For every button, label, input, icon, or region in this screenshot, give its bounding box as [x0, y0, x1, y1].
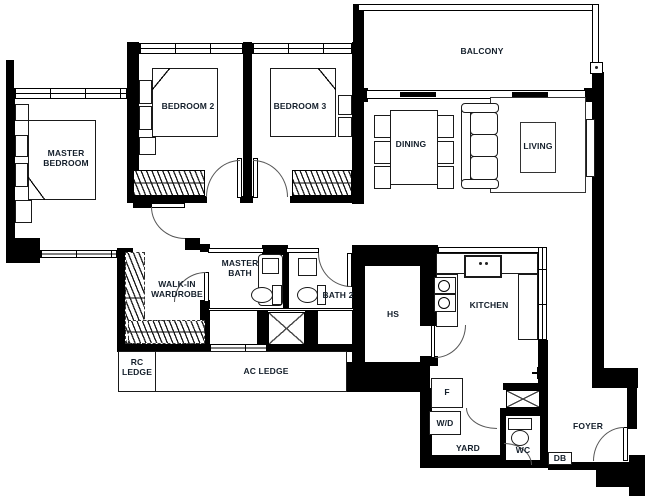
wall-master-corner: [6, 238, 40, 263]
dining-chair: [437, 166, 454, 189]
wall-shaft-left: [257, 310, 268, 348]
wall-hs-bottom: [347, 362, 430, 392]
window-bedroom2: [139, 43, 243, 54]
sink: [298, 258, 317, 276]
sofa-cushion: [470, 156, 498, 180]
shaft-x-icon: [268, 312, 305, 345]
dining-chair: [374, 115, 391, 138]
sliding-door-panel: [400, 92, 436, 97]
cabinet: [15, 104, 29, 121]
bed-fold: [28, 177, 45, 200]
wall-balcony-right: [592, 4, 599, 64]
faucet-icon: [485, 262, 488, 265]
wall-step-block: [596, 470, 630, 487]
dining-chair: [374, 166, 391, 189]
label-bath2: BATH 2: [313, 290, 363, 300]
wall-bedrooms-center: [243, 42, 252, 202]
desk: [139, 137, 156, 155]
label-yard: YARD: [438, 443, 498, 453]
label-hs: HS: [373, 309, 413, 319]
wall-foyer-top: [592, 368, 638, 388]
dining-chair: [437, 115, 454, 138]
walk-in-wardrobe-rail-bottom: [128, 320, 205, 344]
door-arc-yard: [466, 408, 497, 429]
label-db: DB: [548, 453, 572, 463]
label-master-bedroom: MASTER BEDROOM: [26, 148, 106, 168]
door-arc-kitchen: [435, 325, 466, 358]
window-master-bottom: [40, 250, 117, 258]
label-foyer: FOYER: [558, 421, 618, 431]
wall-hall-stub: [133, 202, 151, 208]
wall-corner-block: [629, 455, 645, 496]
toilet-bowl: [511, 430, 529, 446]
bed-fold: [152, 68, 170, 90]
sofa-cushion: [470, 112, 498, 135]
wardrobe-bedroom2: [133, 170, 205, 196]
floor-plan: BALCONY BEDROOM 2 BEDROOM 3 MASTER BEDRO…: [0, 0, 645, 496]
burner-icon: [438, 280, 450, 292]
window-kitchen: [538, 247, 547, 341]
nightstand: [338, 117, 352, 137]
toilet-tank: [272, 285, 282, 305]
wall-masterbath-top: [208, 248, 264, 253]
wall-marker: [537, 367, 539, 379]
wall-yard-bottom: [428, 455, 505, 468]
door-arc-master-bedroom: [151, 207, 185, 239]
tv-console: [586, 119, 595, 177]
label-fridge: F: [437, 387, 457, 397]
wall-hall-corner: [185, 238, 200, 250]
wall-bath2-top: [286, 248, 319, 253]
door-arc-bedroom3: [253, 160, 288, 197]
door-arc-bedroom2: [206, 160, 240, 197]
label-rc-ledge: RC LEDGE: [117, 357, 157, 377]
wall-shaft-right: [305, 310, 318, 348]
wall-column-top-left: [6, 60, 14, 90]
wall-baths-bottom: [208, 308, 354, 311]
label-kitchen: KITCHEN: [449, 300, 529, 310]
wall-bedroom3-bottom: [290, 196, 364, 203]
shaft-x-icon: [506, 390, 540, 408]
label-wc: WC: [508, 445, 538, 455]
label-bedroom2: BEDROOM 2: [148, 101, 228, 111]
wardrobe-bedroom3: [292, 170, 352, 196]
label-ac-ledge: AC LEDGE: [216, 366, 316, 376]
wall-wc-right: [540, 388, 548, 468]
kitchen-sink: [464, 255, 502, 278]
dresser: [15, 200, 32, 223]
label-walk-in-wardrobe: WALK-IN WARDROBE: [137, 279, 217, 299]
wall-balcony-top: [358, 4, 598, 11]
sofa-cushion: [470, 134, 498, 157]
wall-shaft2-top: [503, 383, 548, 390]
sofa-armrest: [461, 179, 499, 189]
wall-bedroom3-right: [352, 42, 364, 204]
wall-master-left: [6, 88, 15, 250]
balcony-drain-dot: [595, 66, 598, 69]
wall-bath-divider: [283, 253, 289, 310]
nightstand: [338, 95, 352, 115]
door-arc-bath2: [318, 253, 351, 287]
window-master-top: [14, 88, 127, 99]
label-washer-dryer: W/D: [425, 418, 465, 428]
wall-wardrobe-left: [117, 248, 125, 352]
label-living: LIVING: [508, 141, 568, 151]
wall-living-right: [592, 72, 604, 370]
label-bedroom3: BEDROOM 3: [260, 101, 340, 111]
bed-fold: [318, 68, 336, 90]
faucet-icon: [479, 262, 482, 265]
label-master-bath: MASTER BATH: [210, 258, 270, 278]
toilet-bowl: [251, 287, 273, 303]
door-arc-entry: [593, 427, 624, 461]
label-dining: DINING: [381, 139, 441, 149]
toilet-tank: [508, 418, 532, 430]
window-bedroom3: [252, 43, 352, 54]
wall-foyer-right: [627, 388, 637, 429]
wall-hs-top: [352, 245, 438, 266]
label-balcony: BALCONY: [442, 46, 522, 56]
